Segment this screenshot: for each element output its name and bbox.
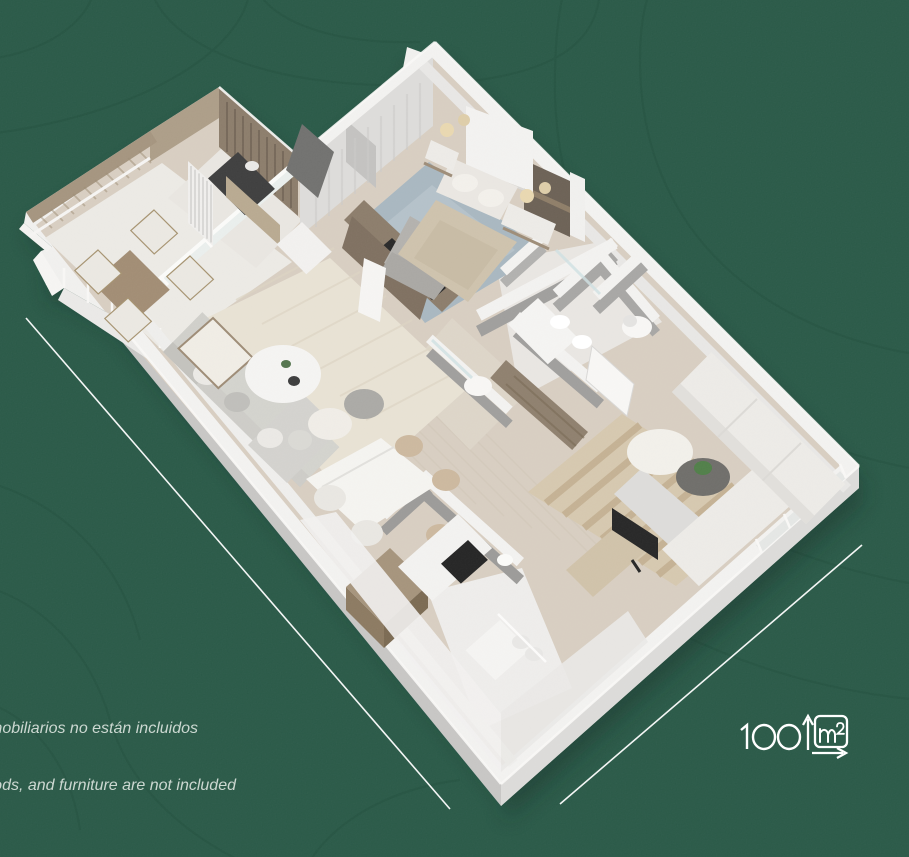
- svg-text:ods, and furniture are not inc: ods, and furniture are not included: [0, 777, 237, 794]
- svg-text:mobiliarios no están incluidos: mobiliarios no están incluidos: [0, 720, 198, 737]
